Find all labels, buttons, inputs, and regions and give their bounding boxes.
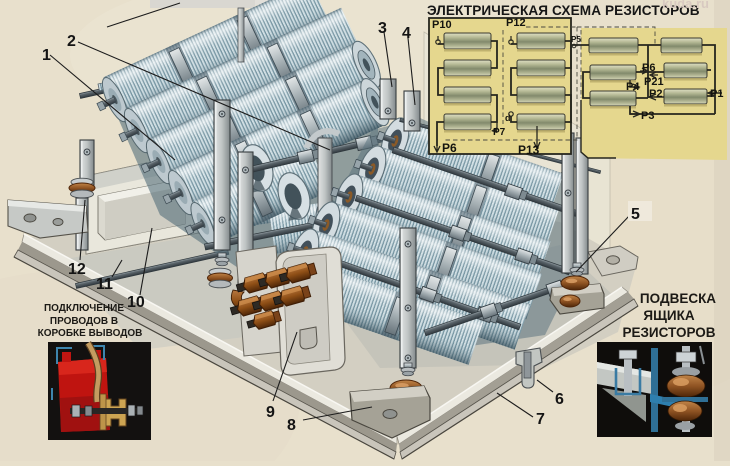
svg-text:4: 4 [402, 25, 411, 42]
svg-text:kuda.ru: kuda.ru [662, 0, 709, 11]
svg-text:Р6: Р6 [442, 141, 457, 155]
svg-text:Р7: Р7 [493, 127, 506, 138]
svg-text:7: 7 [536, 411, 545, 428]
svg-text:3: 3 [378, 20, 387, 37]
svg-text:9: 9 [266, 404, 275, 421]
svg-text:ЭЛЕКТРИЧЕСКАЯ СХЕМА РЕЗИСТОРОВ: ЭЛЕКТРИЧЕСКАЯ СХЕМА РЕЗИСТОРОВ [427, 3, 700, 18]
svg-text:Р6: Р6 [642, 62, 655, 74]
svg-text:d: d [505, 113, 511, 123]
svg-text:2: 2 [67, 33, 76, 50]
svg-text:РЕЗИСТОРОВ: РЕЗИСТОРОВ [622, 325, 715, 340]
svg-text:Р13: Р13 [518, 143, 540, 157]
svg-text:Р4: Р4 [626, 81, 640, 93]
svg-text:ПОДВЕСКА: ПОДВЕСКА [640, 291, 716, 306]
svg-text:Р5: Р5 [571, 35, 581, 44]
svg-text:КОРОБКЕ ВЫВОДОВ: КОРОБКЕ ВЫВОДОВ [38, 328, 143, 339]
svg-text:Р2: Р2 [649, 88, 662, 100]
svg-text:12: 12 [68, 261, 86, 278]
svg-text:8: 8 [287, 417, 296, 434]
svg-text:ЯЩИКА: ЯЩИКА [643, 308, 694, 323]
svg-text:ПОДКЛЮЧЕНИЕ: ПОДКЛЮЧЕНИЕ [44, 303, 124, 314]
svg-text:5: 5 [631, 206, 640, 223]
svg-text:Р1: Р1 [710, 88, 723, 100]
svg-text:ПРОВОДОВ В: ПРОВОДОВ В [50, 316, 118, 327]
svg-text:Р12: Р12 [506, 17, 526, 29]
svg-text:Р3: Р3 [641, 110, 654, 122]
svg-text:11: 11 [96, 276, 113, 293]
svg-text:10: 10 [127, 294, 145, 311]
svg-text:1: 1 [42, 47, 51, 64]
svg-text:Р21: Р21 [644, 76, 664, 88]
svg-text:Р10: Р10 [432, 19, 452, 31]
svg-text:6: 6 [555, 391, 564, 408]
